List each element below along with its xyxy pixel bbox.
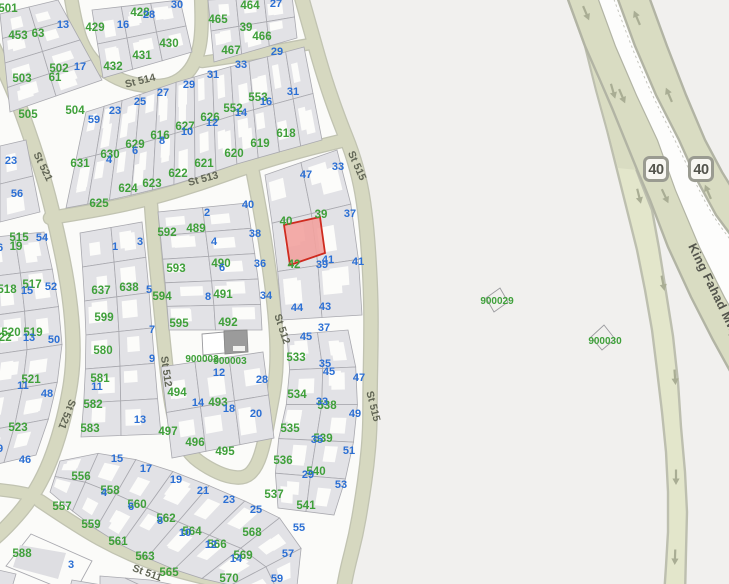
svg-text:593: 593	[166, 263, 185, 275]
svg-text:3: 3	[68, 559, 74, 571]
svg-text:12: 12	[205, 539, 217, 551]
svg-text:501: 501	[0, 3, 18, 15]
svg-text:595: 595	[169, 318, 189, 330]
svg-text:33: 33	[332, 161, 344, 173]
svg-text:621: 621	[194, 158, 214, 170]
svg-text:7: 7	[149, 324, 155, 336]
svg-text:54: 54	[36, 232, 49, 244]
svg-text:27: 27	[270, 0, 282, 10]
svg-text:556: 556	[71, 471, 90, 483]
svg-text:559: 559	[81, 519, 100, 531]
svg-text:40: 40	[280, 216, 293, 228]
svg-text:10: 10	[179, 527, 191, 539]
svg-text:44: 44	[291, 302, 304, 314]
svg-text:37: 37	[344, 208, 356, 220]
svg-text:17: 17	[140, 463, 152, 475]
svg-text:42: 42	[288, 259, 301, 271]
svg-text:47: 47	[300, 169, 312, 181]
svg-text:13: 13	[57, 19, 69, 31]
svg-text:583: 583	[80, 423, 99, 435]
svg-text:534: 534	[287, 389, 307, 401]
svg-text:453: 453	[8, 30, 27, 42]
svg-text:4: 4	[106, 154, 113, 166]
svg-text:25: 25	[134, 96, 146, 108]
svg-text:23: 23	[223, 494, 235, 506]
svg-text:518: 518	[0, 284, 17, 296]
svg-text:8: 8	[157, 515, 163, 527]
svg-text:623: 623	[142, 178, 161, 190]
svg-text:33: 33	[235, 59, 247, 71]
svg-text:39: 39	[240, 22, 253, 34]
svg-text:491: 491	[213, 289, 233, 301]
svg-text:541: 541	[296, 500, 316, 512]
svg-text:40: 40	[693, 162, 709, 178]
svg-text:57: 57	[282, 548, 294, 560]
svg-text:48: 48	[41, 388, 53, 400]
svg-text:9: 9	[149, 353, 155, 365]
svg-text:900030: 900030	[588, 336, 622, 347]
svg-text:63: 63	[32, 28, 45, 40]
svg-text:618: 618	[276, 128, 296, 140]
svg-text:4: 4	[101, 487, 108, 499]
svg-text:594: 594	[152, 291, 172, 303]
svg-text:40: 40	[648, 162, 664, 178]
svg-text:8: 8	[205, 291, 211, 303]
svg-text:430: 430	[159, 38, 178, 50]
svg-text:900029: 900029	[480, 296, 514, 307]
svg-text:10: 10	[181, 126, 193, 138]
svg-text:31: 31	[287, 86, 299, 98]
svg-text:8: 8	[159, 135, 165, 147]
svg-text:535: 535	[280, 423, 300, 435]
svg-text:13: 13	[134, 414, 146, 426]
svg-text:6: 6	[0, 242, 3, 254]
svg-text:536: 536	[273, 455, 292, 467]
svg-text:50: 50	[48, 334, 60, 346]
svg-text:45: 45	[300, 331, 312, 343]
svg-text:568: 568	[242, 527, 262, 539]
svg-text:588: 588	[12, 548, 32, 560]
svg-text:25: 25	[250, 504, 262, 516]
svg-text:14: 14	[235, 107, 248, 119]
svg-text:467: 467	[221, 45, 240, 57]
svg-text:5: 5	[146, 284, 152, 296]
svg-text:28: 28	[143, 9, 155, 21]
svg-text:39: 39	[316, 259, 328, 271]
svg-text:29: 29	[183, 79, 195, 91]
svg-text:14: 14	[192, 397, 205, 409]
svg-text:37: 37	[318, 322, 330, 334]
svg-text:523: 523	[8, 422, 27, 434]
svg-text:16: 16	[260, 96, 272, 108]
svg-text:13: 13	[23, 332, 35, 344]
svg-text:16: 16	[117, 19, 129, 31]
svg-text:53: 53	[335, 479, 347, 491]
svg-text:492: 492	[218, 317, 237, 329]
svg-text:429: 429	[85, 22, 104, 34]
svg-text:494: 494	[167, 387, 187, 399]
svg-text:582: 582	[83, 399, 102, 411]
svg-text:637: 637	[91, 285, 110, 297]
svg-text:11: 11	[91, 381, 103, 393]
svg-text:45: 45	[323, 366, 335, 378]
svg-text:15: 15	[111, 453, 123, 465]
svg-text:431: 431	[132, 50, 152, 62]
svg-text:522: 522	[0, 332, 12, 344]
svg-text:6: 6	[128, 501, 134, 513]
svg-text:35: 35	[311, 434, 323, 446]
svg-text:33: 33	[316, 396, 328, 408]
svg-text:432: 432	[103, 61, 122, 73]
svg-text:465: 465	[208, 14, 228, 26]
svg-text:12: 12	[213, 367, 225, 379]
svg-text:23: 23	[109, 105, 121, 117]
svg-text:15: 15	[21, 285, 33, 297]
svg-text:503: 503	[12, 73, 31, 85]
svg-text:38: 38	[249, 228, 261, 240]
svg-text:59: 59	[88, 114, 100, 126]
svg-text:19: 19	[10, 241, 23, 253]
svg-text:561: 561	[108, 536, 128, 548]
svg-text:496: 496	[185, 437, 204, 449]
svg-text:39: 39	[315, 209, 328, 221]
svg-text:537: 537	[264, 489, 283, 501]
svg-text:49: 49	[349, 408, 361, 420]
svg-text:625: 625	[89, 198, 109, 210]
svg-text:599: 599	[94, 312, 113, 324]
svg-text:464: 464	[240, 0, 260, 12]
svg-text:497: 497	[158, 426, 177, 438]
svg-text:900003: 900003	[213, 356, 247, 367]
svg-text:29: 29	[271, 46, 283, 58]
svg-text:505: 505	[18, 109, 38, 121]
svg-text:563: 563	[135, 551, 154, 563]
svg-text:9: 9	[0, 443, 3, 455]
svg-text:580: 580	[93, 345, 112, 357]
svg-text:18: 18	[223, 403, 235, 415]
svg-text:40: 40	[242, 199, 254, 211]
svg-text:3: 3	[137, 236, 143, 248]
svg-text:592: 592	[157, 227, 176, 239]
svg-text:504: 504	[65, 105, 85, 117]
svg-text:43: 43	[319, 301, 331, 313]
svg-text:466: 466	[252, 31, 271, 43]
svg-text:631: 631	[70, 158, 90, 170]
svg-text:2: 2	[204, 207, 210, 219]
svg-text:30: 30	[171, 0, 183, 11]
svg-text:46: 46	[19, 454, 31, 466]
svg-text:622: 622	[168, 168, 187, 180]
svg-text:28: 28	[256, 374, 268, 386]
svg-text:620: 620	[224, 148, 243, 160]
svg-text:41: 41	[352, 256, 364, 268]
svg-text:638: 638	[119, 282, 139, 294]
svg-text:19: 19	[170, 474, 182, 486]
svg-text:20: 20	[250, 408, 262, 420]
svg-text:56: 56	[11, 188, 23, 200]
svg-text:47: 47	[353, 372, 365, 384]
svg-text:619: 619	[250, 138, 269, 150]
svg-text:59: 59	[271, 573, 283, 584]
svg-text:21: 21	[197, 485, 209, 497]
svg-text:17: 17	[74, 61, 86, 73]
svg-text:570: 570	[219, 573, 238, 584]
svg-text:4: 4	[211, 236, 218, 248]
svg-text:6: 6	[219, 262, 225, 274]
svg-text:34: 34	[260, 290, 273, 302]
svg-text:55: 55	[293, 522, 305, 534]
svg-text:6: 6	[132, 145, 138, 157]
svg-text:624: 624	[118, 183, 138, 195]
svg-text:52: 52	[45, 281, 57, 293]
svg-text:1: 1	[112, 241, 118, 253]
svg-text:29: 29	[302, 469, 314, 481]
svg-text:533: 533	[286, 352, 305, 364]
svg-text:489: 489	[186, 223, 205, 235]
svg-text:51: 51	[343, 445, 355, 457]
svg-text:12: 12	[206, 117, 218, 129]
svg-text:36: 36	[254, 258, 266, 270]
svg-text:557: 557	[52, 501, 71, 513]
svg-text:14: 14	[230, 553, 243, 565]
svg-text:31: 31	[207, 69, 219, 81]
svg-text:495: 495	[215, 446, 235, 458]
svg-text:61: 61	[49, 72, 62, 84]
svg-text:27: 27	[157, 87, 169, 99]
svg-text:11: 11	[17, 380, 29, 392]
svg-text:23: 23	[5, 155, 17, 167]
